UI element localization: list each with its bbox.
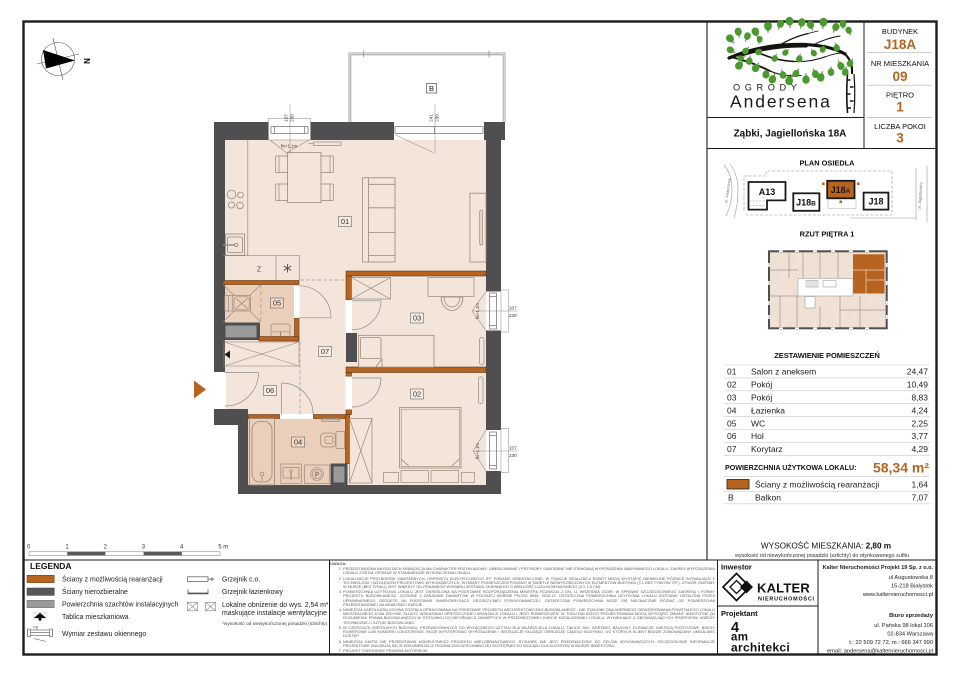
svg-text:Z: Z: [257, 267, 262, 274]
svg-text:Pokój: Pokój: [751, 393, 772, 403]
svg-text:1: 1: [896, 100, 904, 115]
svg-text:06: 06: [266, 386, 274, 395]
svg-text:Ząbki, Jagiellońska 18A: Ząbki, Jagiellońska 18A: [734, 129, 847, 140]
svg-text:PIĘTRO: PIĘTRO: [886, 91, 914, 100]
svg-text:ZESTAWIENIE POMIESZCZEŃ: ZESTAWIENIE POMIESZCZEŃ: [774, 351, 880, 360]
svg-text:2,25: 2,25: [911, 418, 928, 428]
svg-text:230: 230: [435, 114, 440, 122]
svg-text:0: 0: [27, 545, 31, 551]
svg-text:107: 107: [509, 446, 517, 451]
svg-text:10,49: 10,49: [907, 380, 929, 390]
svg-text:58,34 m²: 58,34 m²: [873, 459, 929, 475]
svg-text:7,07: 7,07: [911, 493, 928, 503]
svg-text:Lokalne obniżenie do wys. 2,54: Lokalne obniżenie do wys. 2,54 m*: [222, 602, 329, 609]
svg-text:Ściany z możliwością rearanżac: Ściany z możliwością rearanżacji: [755, 479, 879, 490]
svg-text:04: 04: [727, 405, 737, 415]
svg-text:04: 04: [294, 438, 302, 447]
svg-text:BUDYNEK: BUDYNEK: [882, 27, 918, 36]
svg-text:Balkon: Balkon: [755, 493, 781, 503]
svg-text:Biuro sprzedaży: Biuro sprzedaży: [889, 613, 934, 619]
svg-text:NIERUCHOMOŚCI: NIERUCHOMOŚCI: [758, 595, 815, 602]
svg-text:WYSOKOŚĆ MIESZKANIA: 2,80 m: WYSOKOŚĆ MIESZKANIA: 2,80 m: [761, 539, 891, 550]
svg-text:B: B: [728, 493, 734, 503]
svg-text:Łazienka: Łazienka: [751, 405, 785, 415]
svg-text:241: 241: [429, 114, 434, 122]
svg-text:107: 107: [509, 306, 517, 311]
svg-text:24,47: 24,47: [907, 367, 929, 377]
svg-text:J18: J18: [868, 197, 883, 207]
svg-text:06: 06: [727, 431, 737, 441]
svg-text:03: 03: [413, 314, 421, 323]
svg-text:LEGENDA: LEGENDA: [30, 561, 72, 571]
svg-text:fix+1,1m: fix+1,1m: [281, 144, 297, 149]
svg-text:fix+1,1m: fix+1,1m: [475, 303, 480, 319]
svg-text:*wysokość od niewykończonej po: *wysokość od niewykończonej posadzki (sz…: [222, 621, 327, 627]
svg-text:Kalter Nieruchomości Projekt 1: Kalter Nieruchomości Projekt 19 Sp. z o.…: [823, 565, 934, 571]
svg-text:2: 2: [104, 545, 108, 551]
svg-text:P: P: [315, 472, 319, 479]
svg-text:B: B: [429, 84, 434, 93]
svg-text:02-834 Warszawa: 02-834 Warszawa: [887, 632, 933, 638]
svg-text:Grzejnik c.o.: Grzejnik c.o.: [222, 576, 260, 583]
svg-text:Projektant: Projektant: [721, 609, 758, 618]
svg-text:Tablica mieszkaniowa: Tablica mieszkaniowa: [62, 614, 129, 621]
svg-text:01: 01: [341, 217, 349, 226]
svg-text:02: 02: [727, 380, 737, 390]
svg-text:05: 05: [273, 299, 281, 308]
svg-text:Wymiar zestawu okiennego: Wymiar zestawu okiennego: [62, 631, 146, 638]
svg-text:09: 09: [892, 69, 907, 84]
svg-text:02: 02: [413, 390, 421, 399]
svg-text:1: 1: [65, 545, 69, 551]
svg-text:t.: 22 509 72 72, m.: 666 347: t.: 22 509 72 72, m.: 666 347 990: [849, 640, 933, 646]
svg-text:Salon z aneksem: Salon z aneksem: [751, 367, 816, 377]
svg-text:Pokój: Pokój: [751, 380, 772, 390]
svg-text:email: andersena@kalternieruch: email: andersena@kalternieruchomosci.pl: [827, 649, 933, 655]
svg-text:230: 230: [290, 114, 295, 122]
svg-text:Ściany z możliwością rearanżac: Ściany z możliwością rearanżacji: [62, 574, 163, 583]
svg-text:05: 05: [727, 418, 737, 428]
svg-text:maskujące instalacje wentylacy: maskujące instalacje wentylacyjne: [222, 610, 327, 617]
svg-text:Ściany nierozbieralne: Ściany nierozbieralne: [62, 587, 128, 596]
svg-text:NR MIESZKANIA: NR MIESZKANIA: [871, 59, 929, 68]
svg-text:4: 4: [180, 545, 184, 551]
svg-text:8,83: 8,83: [911, 393, 928, 403]
svg-text:N: N: [82, 58, 91, 64]
svg-text:A13: A13: [759, 187, 776, 197]
svg-text:J18A: J18A: [884, 37, 917, 52]
svg-text:107: 107: [33, 625, 38, 629]
svg-text:ul. Pańska 98 lokal 106: ul. Pańska 98 lokal 106: [874, 623, 933, 629]
svg-text:07: 07: [321, 347, 329, 356]
svg-text:Korytarz: Korytarz: [751, 444, 783, 454]
svg-text:1,64: 1,64: [911, 480, 928, 490]
svg-text:3: 3: [896, 131, 904, 146]
svg-text:PLAN OSIEDLA: PLAN OSIEDLA: [799, 159, 855, 168]
svg-text:RZUT PIĘTRA 1: RZUT PIĘTRA 1: [800, 229, 855, 238]
svg-text:Grzejnik łazienkowy: Grzejnik łazienkowy: [222, 589, 283, 596]
svg-text:5 m: 5 m: [218, 545, 228, 551]
svg-text:230: 230: [509, 313, 517, 318]
svg-text:www.kalternieruchomosci.pl: www.kalternieruchomosci.pl: [862, 592, 933, 598]
svg-text:ul. Andersena: ul. Andersena: [723, 178, 731, 204]
svg-text:WC: WC: [751, 418, 765, 428]
svg-text:3: 3: [142, 545, 146, 551]
svg-text:230: 230: [509, 453, 517, 458]
svg-text:ul Augustowska 8: ul Augustowska 8: [889, 575, 933, 581]
svg-text:07: 07: [727, 444, 737, 454]
svg-text:107: 107: [284, 114, 289, 122]
svg-text:ul. Jagiellońska: ul. Jagiellońska: [917, 181, 924, 209]
svg-text:Hol: Hol: [751, 431, 764, 441]
svg-text:fix+1,1m: fix+1,1m: [475, 443, 480, 459]
svg-text:03: 03: [727, 393, 737, 403]
svg-text:Powierzchnia szachtów instalac: Powierzchnia szachtów instalacyjnych: [62, 601, 179, 608]
svg-text:architekci: architekci: [731, 641, 790, 655]
svg-text:4,29: 4,29: [911, 444, 928, 454]
svg-text:Andersena: Andersena: [730, 92, 832, 112]
svg-text:Inwestor: Inwestor: [721, 563, 752, 572]
svg-text:01: 01: [727, 367, 737, 377]
svg-text:wysokość od niewykończonej pos: wysokość od niewykończonej posadzki (szl…: [734, 553, 909, 559]
svg-text:POWIERZCHNIA UŻYTKOWA LOKALU:: POWIERZCHNIA UŻYTKOWA LOKALU:: [725, 463, 856, 472]
svg-text:15-218 Białystok: 15-218 Białystok: [891, 584, 933, 590]
svg-text:3,77: 3,77: [911, 431, 928, 441]
svg-text:4,24: 4,24: [911, 405, 928, 415]
svg-text:KALTER: KALTER: [757, 581, 810, 596]
